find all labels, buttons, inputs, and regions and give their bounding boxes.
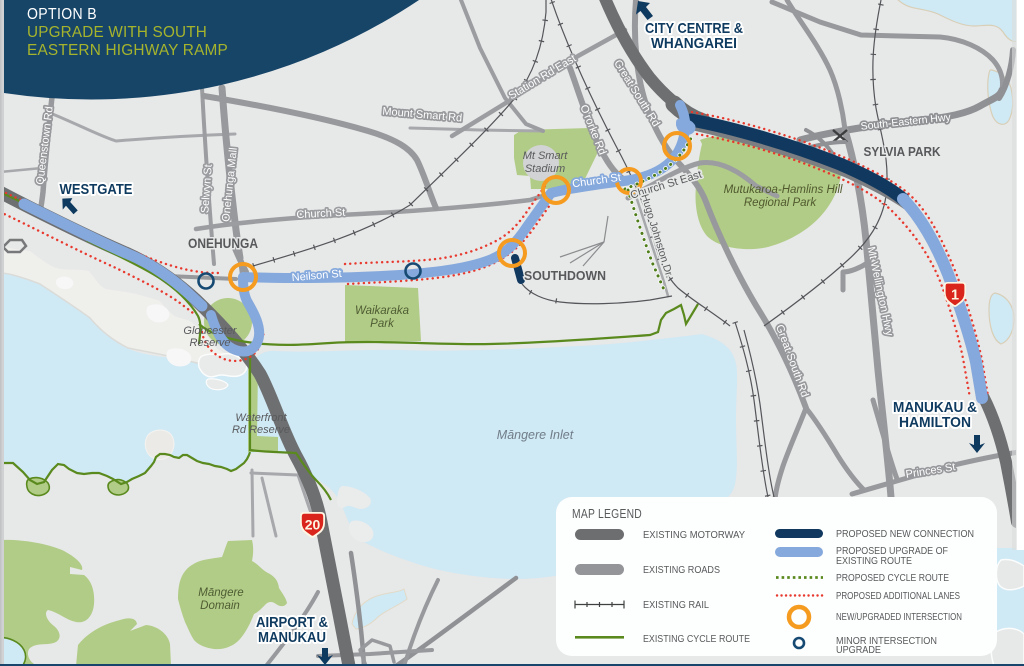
svg-text:EXISTING RAIL: EXISTING RAIL — [643, 600, 709, 611]
svg-text:Reserve: Reserve — [190, 337, 231, 349]
svg-text:UPGRADE: UPGRADE — [836, 645, 881, 656]
svg-text:EXISTING ROUTE: EXISTING ROUTE — [836, 556, 912, 567]
svg-text:Mt Smart: Mt Smart — [523, 150, 569, 162]
svg-text:Māngere: Māngere — [198, 587, 243, 599]
svg-text:OPTION B: OPTION B — [27, 6, 97, 23]
svg-text:Waikaraka: Waikaraka — [355, 305, 409, 317]
svg-text:20: 20 — [305, 517, 321, 533]
svg-text:NEW/UPGRADED INTERSECTION: NEW/UPGRADED INTERSECTION — [836, 612, 962, 623]
svg-text:PROPOSED CYCLE ROUTE: PROPOSED CYCLE ROUTE — [836, 573, 949, 584]
svg-text:MAP LEGEND: MAP LEGEND — [572, 507, 642, 521]
svg-text:WHANGAREI: WHANGAREI — [651, 35, 737, 52]
svg-text:UPGRADE WITH SOUTH: UPGRADE WITH SOUTH — [27, 24, 207, 41]
svg-text:Church St: Church St — [296, 207, 345, 222]
svg-text:Rd Reserve: Rd Reserve — [232, 424, 290, 436]
svg-text:SOUTHDOWN: SOUTHDOWN — [524, 268, 606, 283]
svg-text:EXISTING MOTORWAY: EXISTING MOTORWAY — [643, 530, 745, 541]
svg-text:WESTGATE: WESTGATE — [60, 181, 133, 198]
svg-text:PROPOSED NEW CONNECTION: PROPOSED NEW CONNECTION — [836, 529, 974, 540]
svg-text:Regional Park: Regional Park — [744, 197, 817, 209]
svg-text:Māngere Inlet: Māngere Inlet — [497, 428, 574, 442]
svg-text:Stadium: Stadium — [525, 163, 565, 175]
svg-text:SYLVIA PARK: SYLVIA PARK — [864, 144, 942, 159]
svg-text:EXISTING CYCLE ROUTE: EXISTING CYCLE ROUTE — [643, 634, 750, 645]
svg-text:HAMILTON: HAMILTON — [899, 414, 971, 431]
svg-text:Park: Park — [370, 318, 395, 330]
svg-text:EASTERN HIGHWAY RAMP: EASTERN HIGHWAY RAMP — [27, 42, 228, 59]
svg-text:PROPOSED ADDITIONAL LANES: PROPOSED ADDITIONAL LANES — [836, 591, 960, 602]
svg-text:Gloucester: Gloucester — [183, 325, 238, 337]
svg-text:1: 1 — [951, 288, 959, 304]
svg-text:Waterfront: Waterfront — [235, 412, 287, 424]
svg-text:Domain: Domain — [200, 600, 240, 612]
svg-text:Mutukaroa-Hamlins Hill: Mutukaroa-Hamlins Hill — [724, 184, 843, 196]
svg-text:MANUKAU: MANUKAU — [258, 629, 326, 646]
svg-text:EXISTING ROADS: EXISTING ROADS — [643, 565, 720, 576]
svg-text:ONEHUNGA: ONEHUNGA — [188, 235, 258, 251]
